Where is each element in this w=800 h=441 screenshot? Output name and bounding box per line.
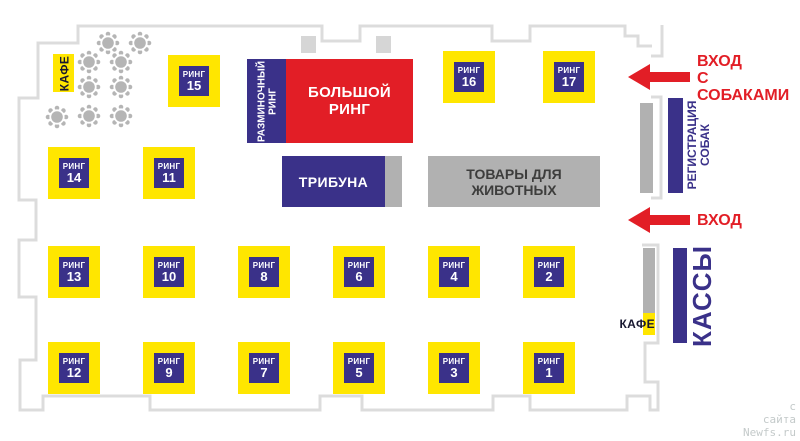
ring-5: РИНГ5 (333, 342, 385, 394)
table-icon (110, 105, 133, 128)
cash-desk (673, 248, 687, 343)
cash-queue-block (643, 248, 655, 313)
watermark: с сайта Newfs.ru (743, 400, 796, 439)
ring-8: РИНГ8 (238, 246, 290, 298)
warmup-ring-label: РАЗМИНОЧНЫЙ РИНГ (247, 59, 286, 143)
entrance-main-label: ВХОД (697, 212, 742, 229)
ring-16: РИНГ16 (443, 51, 495, 103)
entrance-main-arrow-icon (628, 206, 690, 234)
ring-10: РИНГ10 (143, 246, 195, 298)
pet-goods-area: ТОВАРЫ ДЛЯ ЖИВОТНЫХ (428, 156, 600, 207)
ring-14: РИНГ14 (48, 147, 100, 199)
entrance-dogs-label: ВХОД С СОБАКАМИ (697, 53, 800, 104)
ring-13: РИНГ13 (48, 246, 100, 298)
entrance-dogs-arrow-icon (628, 63, 690, 91)
ring-6: РИНГ6 (333, 246, 385, 298)
tribune-area: ТРИБУНА (282, 156, 385, 207)
registration-desk (668, 98, 683, 193)
pillar (301, 36, 391, 53)
tribune-label: ТРИБУНА (299, 174, 368, 190)
table-icon (110, 76, 133, 99)
cafe-bottom-label: КАФЕ (610, 317, 655, 331)
registration-label: РЕГИСТРАЦИЯ СОБАК (684, 95, 714, 195)
big-ring-label: БОЛЬШОЙ РИНГ (286, 84, 413, 118)
cash-label: КАССЫ (687, 250, 717, 342)
big-ring-area: БОЛЬШОЙ РИНГ (286, 59, 413, 143)
ring-17: РИНГ17 (543, 51, 595, 103)
ring-15: РИНГ15 (168, 55, 220, 107)
floor-plan: КАФЕ РАЗМИНОЧНЫЙ РИНГ БОЛЬШОЙ РИНГ ТРИБУ… (0, 0, 800, 441)
ring-11: РИНГ11 (143, 147, 195, 199)
table-icon (46, 106, 69, 129)
table-icon (78, 51, 101, 74)
cafe-top-label: КАФЕ (53, 54, 74, 92)
ring-3: РИНГ3 (428, 342, 480, 394)
table-icon (78, 76, 101, 99)
table-icon (129, 32, 152, 55)
table-icon (110, 51, 133, 74)
ring-7: РИНГ7 (238, 342, 290, 394)
table-icon (78, 105, 101, 128)
pet-goods-label: ТОВАРЫ ДЛЯ ЖИВОТНЫХ (428, 166, 600, 198)
warmup-ring-area: РАЗМИНОЧНЫЙ РИНГ (247, 59, 286, 143)
table-icon (97, 32, 120, 55)
ring-9: РИНГ9 (143, 342, 195, 394)
ring-12: РИНГ12 (48, 342, 100, 394)
ring-4: РИНГ4 (428, 246, 480, 298)
cafe-top-area: КАФЕ (53, 54, 74, 92)
tribune-side-block (385, 156, 402, 207)
ring-2: РИНГ2 (523, 246, 575, 298)
ring-1: РИНГ1 (523, 342, 575, 394)
registration-queue-block (640, 103, 653, 193)
